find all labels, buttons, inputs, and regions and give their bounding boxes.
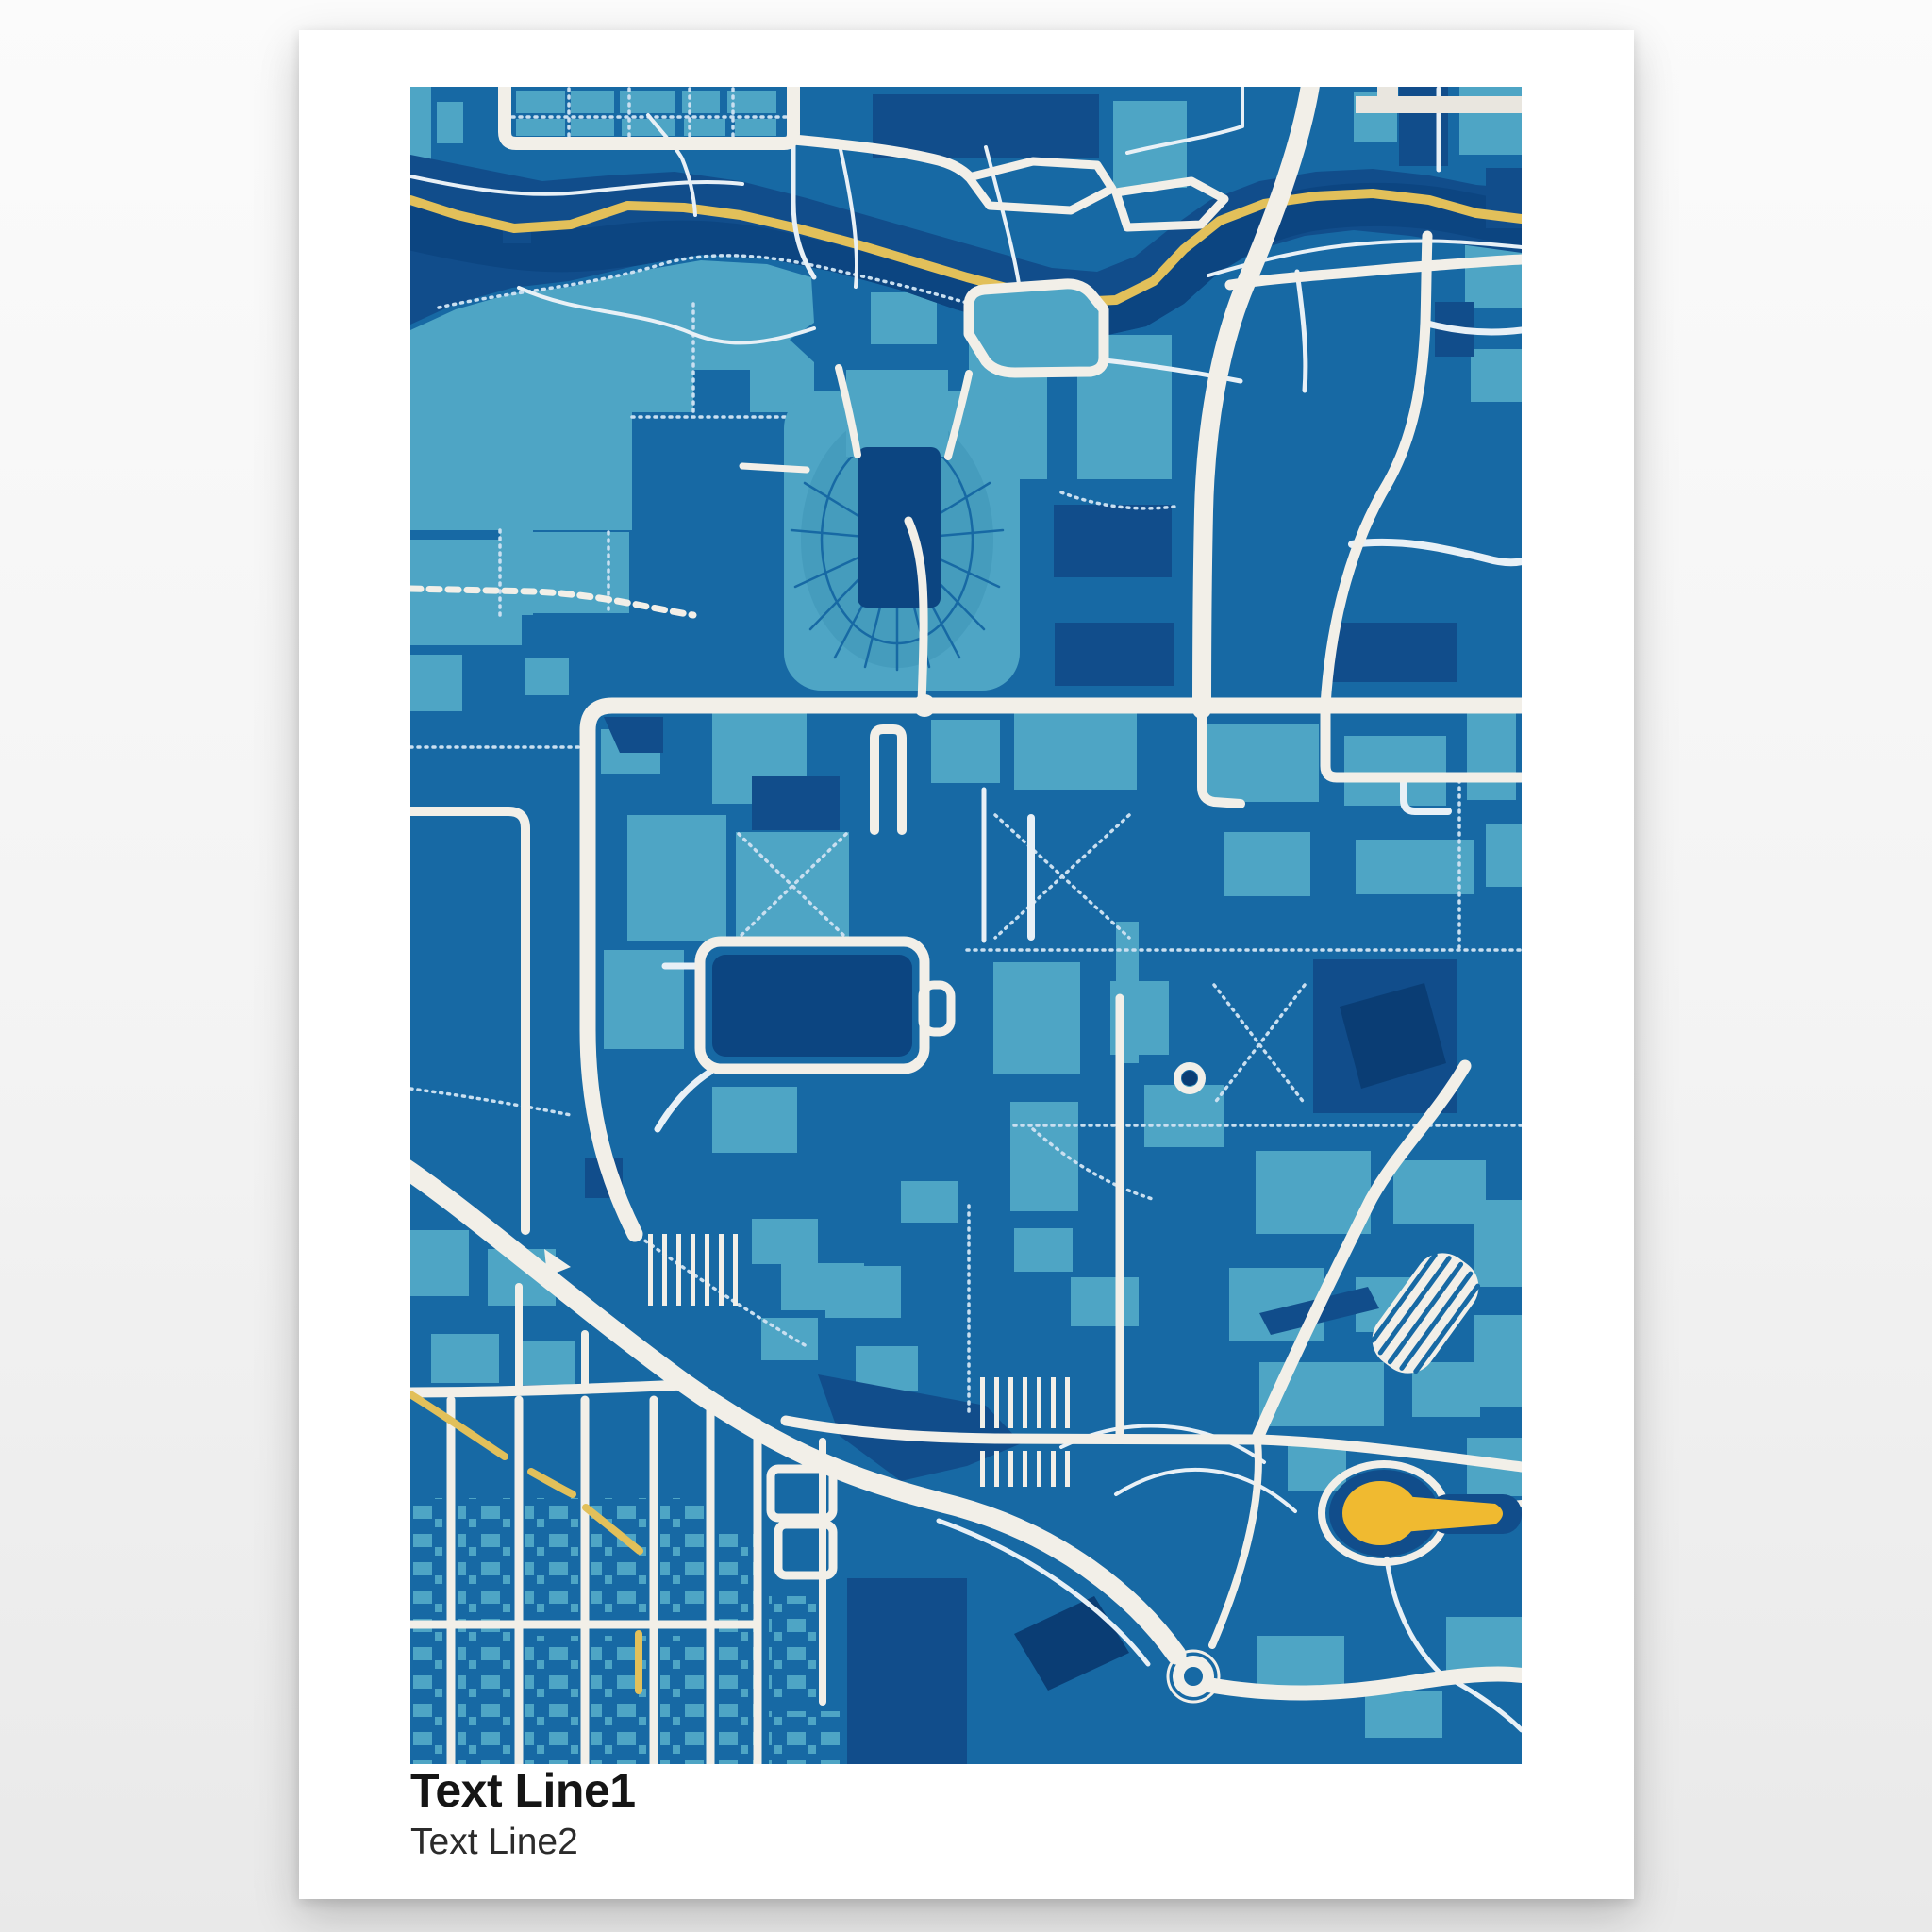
map-poster: Text Line1 Text Line2 xyxy=(299,30,1634,1899)
small-circle-plaza xyxy=(1177,1066,1202,1091)
page-background: { "poster": { "text_line1": "Text Line1"… xyxy=(0,0,1932,1932)
poster-subtitle: Text Line2 xyxy=(410,1822,636,1863)
poster-caption: Text Line1 Text Line2 xyxy=(410,1766,636,1863)
stadium-field xyxy=(858,447,941,608)
reservoir xyxy=(712,955,912,1057)
poster-title: Text Line1 xyxy=(410,1766,636,1816)
stadium xyxy=(784,370,1020,691)
highway-band xyxy=(1356,96,1522,113)
roundabout xyxy=(1168,1651,1219,1702)
city-map-graphic xyxy=(410,87,1522,1764)
map-artwork xyxy=(410,87,1522,1764)
